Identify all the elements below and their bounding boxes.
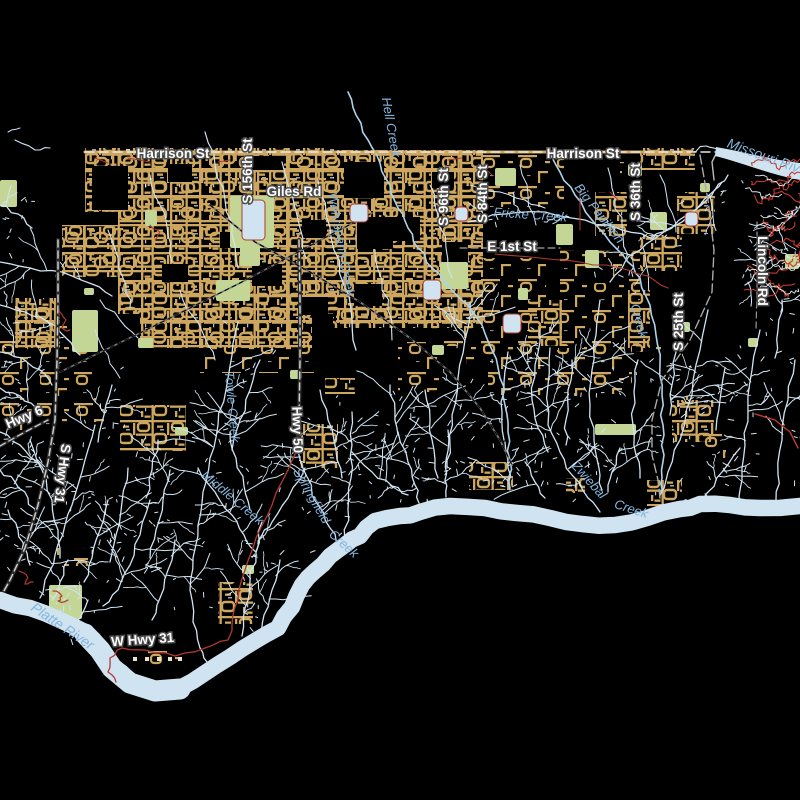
svg-text:S 84th St: S 84th St [475,165,490,223]
svg-text:S 156th St: S 156th St [240,138,255,204]
svg-text:Lincoln Rd: Lincoln Rd [755,236,770,306]
svg-text:Giles Rd: Giles Rd [267,184,322,199]
svg-text:E 1st St: E 1st St [487,239,537,254]
svg-text:S 96th St: S 96th St [436,168,451,226]
svg-text:S 36th St: S 36th St [628,163,643,221]
svg-text:S 25th St: S 25th St [671,293,686,351]
svg-text:Harrison St: Harrison St [137,146,210,161]
svg-text:Harrison St: Harrison St [547,146,620,161]
svg-text:Hwy 50: Hwy 50 [289,406,306,453]
